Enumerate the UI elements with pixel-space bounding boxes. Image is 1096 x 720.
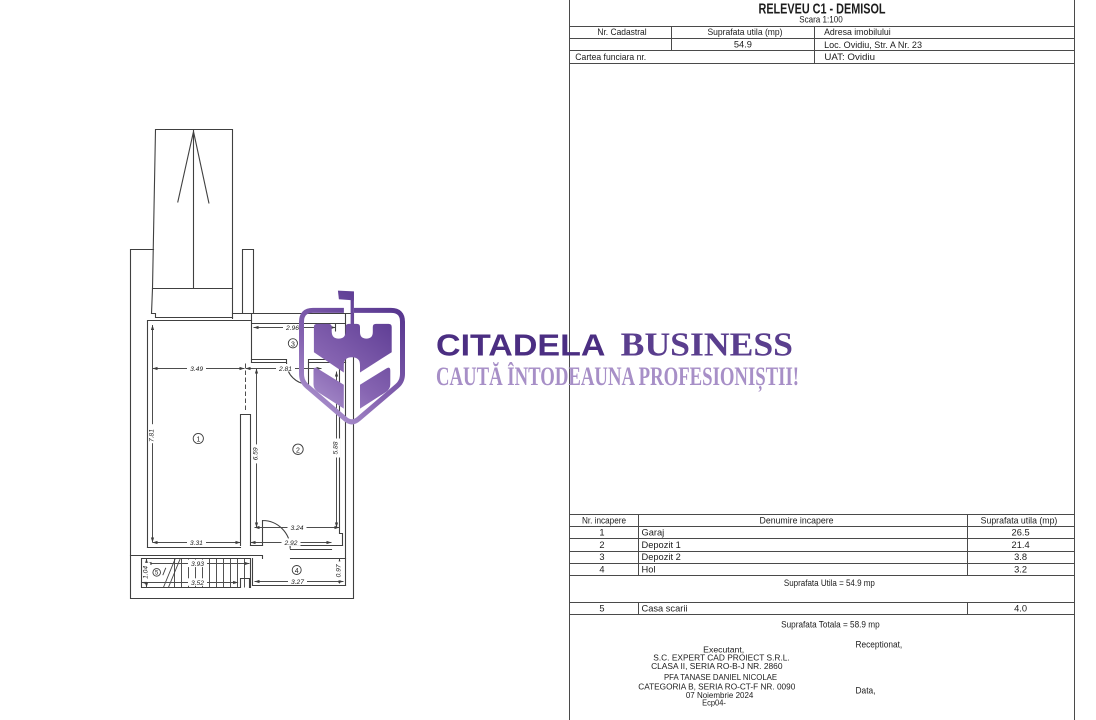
svg-text:Adresa imobilului: Adresa imobilului [824, 27, 891, 37]
svg-text:Cartea funciara nr.: Cartea funciara nr. [575, 52, 646, 62]
svg-text:4: 4 [599, 564, 604, 574]
svg-text:1: 1 [599, 528, 604, 538]
svg-text:CLASA II, SERIA RO-B-J NR. 286: CLASA II, SERIA RO-B-J NR. 2860 [651, 661, 783, 671]
svg-text:6.59: 6.59 [253, 447, 260, 460]
svg-text:3: 3 [599, 552, 604, 562]
svg-text:2.92: 2.92 [283, 540, 297, 547]
svg-text:Suprafata utila (mp): Suprafata utila (mp) [707, 27, 782, 37]
svg-text:Hol: Hol [642, 564, 656, 574]
svg-text:BUSINESS: BUSINESS [621, 326, 793, 363]
svg-text:Nr. incapere: Nr. incapere [582, 515, 626, 525]
svg-text:Depozit 2: Depozit 2 [642, 552, 681, 562]
svg-text:Nr. Cadastral: Nr. Cadastral [597, 27, 646, 37]
svg-text:54.9: 54.9 [734, 39, 752, 49]
svg-text:Data,: Data, [856, 686, 876, 696]
svg-text:1: 1 [196, 437, 200, 444]
svg-text:5: 5 [599, 604, 604, 614]
svg-text:Suprafata Totala = 58.9 mp: Suprafata Totala = 58.9 mp [781, 619, 880, 629]
svg-text:3.24: 3.24 [290, 525, 303, 532]
svg-text:Loc. Ovidiu, Str. A Nr. 23: Loc. Ovidiu, Str. A Nr. 23 [824, 40, 922, 50]
svg-text:CAUTĂ ÎNTODEAUNA PROFESIONIȘTI: CAUTĂ ÎNTODEAUNA PROFESIONIȘTII! [436, 362, 799, 392]
svg-text:Garaj: Garaj [642, 528, 665, 538]
svg-text:21.4: 21.4 [1012, 540, 1030, 550]
svg-text:Scara 1:100: Scara 1:100 [799, 15, 843, 25]
svg-text:3.27: 3.27 [291, 579, 304, 586]
svg-text:3.93: 3.93 [191, 561, 204, 568]
svg-text:3.31: 3.31 [190, 540, 203, 547]
svg-text:Receptionat,: Receptionat, [856, 639, 903, 649]
svg-text:UAT: Ovidiu: UAT: Ovidiu [824, 52, 875, 62]
svg-text:2: 2 [599, 540, 604, 550]
svg-text:CITADELA: CITADELA [436, 327, 606, 362]
svg-text:7.81: 7.81 [149, 429, 156, 442]
svg-text:3.2: 3.2 [1014, 564, 1027, 574]
svg-text:2: 2 [296, 447, 300, 454]
svg-text:26.5: 26.5 [1012, 528, 1030, 538]
svg-text:4: 4 [295, 568, 299, 575]
svg-text:Depozit 1: Depozit 1 [642, 540, 681, 550]
svg-text:5.88: 5.88 [333, 441, 340, 454]
svg-text:Ecp04-: Ecp04- [702, 698, 726, 708]
svg-text:Suprafata Utila = 54.9 mp: Suprafata Utila = 54.9 mp [784, 578, 875, 588]
svg-text:3.49: 3.49 [190, 366, 203, 373]
svg-text:0.97: 0.97 [336, 564, 343, 577]
svg-text:3.8: 3.8 [1014, 552, 1027, 562]
svg-text:Denumire incapere: Denumire incapere [760, 515, 834, 525]
svg-text:Casa scarii: Casa scarii [642, 604, 688, 614]
svg-text:1.04: 1.04 [143, 566, 150, 579]
svg-text:2.96: 2.96 [285, 325, 299, 332]
svg-text:3: 3 [291, 341, 295, 348]
svg-text:4.0: 4.0 [1014, 604, 1027, 614]
svg-text:3.52: 3.52 [191, 580, 204, 587]
svg-text:2.81: 2.81 [278, 366, 292, 373]
svg-text:Suprafata utila (mp): Suprafata utila (mp) [981, 515, 1058, 525]
